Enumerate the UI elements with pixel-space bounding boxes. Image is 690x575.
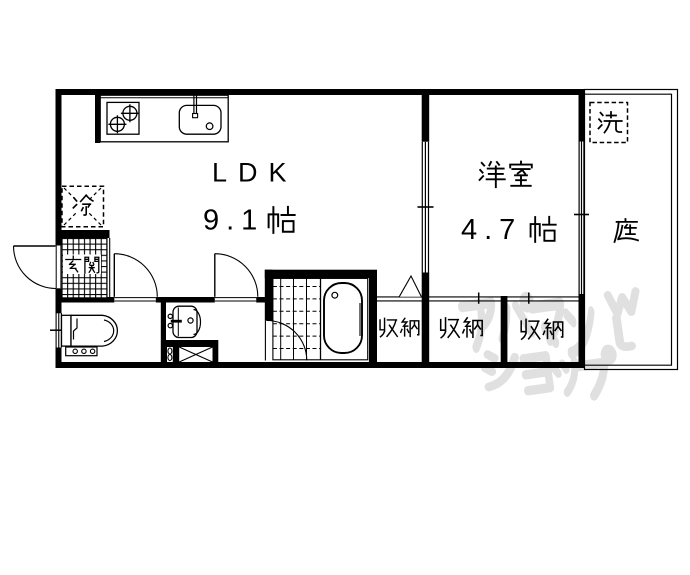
svg-text:LDK: LDK xyxy=(212,158,298,188)
svg-text:4.7: 4.7 xyxy=(461,214,522,246)
svg-text:9.1: 9.1 xyxy=(203,205,264,237)
